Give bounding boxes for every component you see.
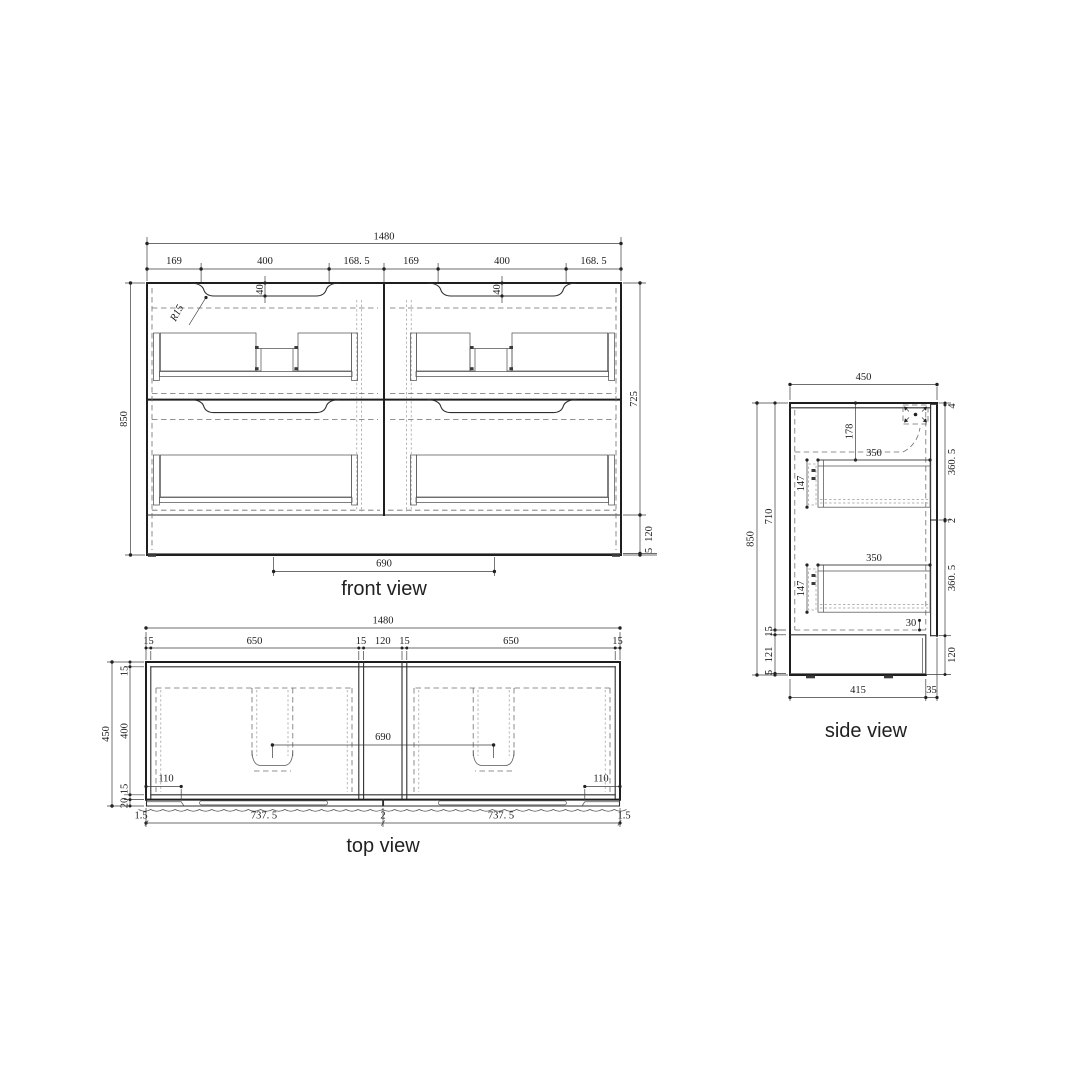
dim-top-bottom-seg-1: 1.5 [134,811,147,822]
dim-top-depth: 450 [101,726,112,742]
dim-front-seg-3: 168. 5 [343,256,369,267]
top-view-label: top view [346,835,420,857]
dim-front-body-height: 725 [629,391,640,407]
dim-side-depth: 450 [856,372,872,383]
dim-side-drawer-front-upper: 360. 5 [947,449,958,475]
dim-side-drawer-depth-lower: 350 [866,553,882,564]
dim-side-drawer-height-lower: 147 [796,581,807,597]
dim-top-bottom-seg-4: 737. 5 [488,811,514,822]
top-view: 1480 15 650 15 120 15 650 15 450 15 400 [101,616,631,858]
dim-top-seg-2: 650 [247,636,263,647]
dim-side-interior-height: 710 [764,509,775,525]
dim-top-seg-5: 15 [399,636,410,647]
dim-side-toe-recess: 35 [926,685,937,696]
dim-front-seg-1: 169 [166,256,182,267]
dim-side-bottom-edge: 5 [764,670,775,675]
dim-side-drawer-height-upper: 147 [796,476,807,492]
dim-front-drain-spacing: 690 [376,559,392,570]
dim-front-handle-depth: 40 [255,284,266,295]
side-view: 450 178 350 147 350 147 30 850 [746,372,959,742]
dim-front-plinth-height: 120 [644,526,655,542]
dim-side-bottom-clearance: 30 [906,618,917,629]
dim-top-corner-offset-right: 110 [593,774,608,785]
dim-front-corner-radius: R15 [168,303,186,324]
dim-front-seg-4: 169 [403,256,419,267]
front-view: 1480 169 400 168. 5 169 400 168. 5 40 40… [119,232,657,601]
dim-top-interior-depth: 400 [120,723,131,739]
dim-front-seg-6: 168. 5 [580,256,606,267]
side-view-label: side view [825,720,908,742]
dim-side-plinth-height: 120 [947,647,958,663]
dim-top-bottom-seg-5: 1.5 [617,811,630,822]
dim-top-bottom-seg-2: 737. 5 [251,811,277,822]
dim-top-seg-7: 15 [612,636,623,647]
dim-front-overall-width: 1480 [374,232,395,243]
dim-top-front-wall: 15 [120,784,131,795]
dim-top-bottom-seg-3: 2 [380,811,385,822]
dim-top-seg-4: 120 [375,636,391,647]
side-lower-drawer [809,565,931,612]
dim-top-seg-3: 15 [356,636,367,647]
dim-side-plinth-inner: 121 [764,647,775,663]
dim-top-seg-6: 650 [503,636,519,647]
cad-drawing: 1480 169 400 168. 5 169 400 168. 5 40 40… [0,0,1080,1080]
front-view-label: front view [341,578,427,600]
dim-side-front-gap: 2 [947,518,958,523]
dim-side-bottom-wall: 15 [764,626,775,637]
handle-cutout [191,400,339,413]
dim-front-bottom-edge: 5 [644,548,655,553]
handle-cutout [428,400,576,413]
dim-side-drawer-front-lower: 360. 5 [947,565,958,591]
dim-top-overall-width: 1480 [373,616,394,627]
dim-front-height: 850 [119,411,130,427]
dim-side-top-gap: 4 [947,403,958,409]
dim-top-seg-1: 15 [143,636,154,647]
dim-top-door-thickness: 20 [120,798,131,809]
handle-slot [200,801,328,805]
side-upper-drawer [809,460,931,507]
dim-side-height: 850 [746,531,757,547]
dim-top-corner-offset-left: 110 [158,774,173,785]
drawing-sheet: 1480 169 400 168. 5 169 400 168. 5 40 40… [0,0,1080,1080]
dim-front-seg-2: 400 [257,256,273,267]
dim-front-handle-depth: 40 [492,284,503,295]
drain-curve [903,428,920,452]
dim-front-seg-5: 400 [494,256,510,267]
dim-side-drawer-top-offset: 178 [845,424,856,440]
dim-side-base-depth: 415 [850,685,866,696]
dim-top-drain-spacing: 690 [375,732,391,743]
handle-slot [438,801,566,805]
dim-side-drawer-depth-upper: 350 [866,448,882,459]
dim-top-top-wall: 15 [120,666,131,677]
